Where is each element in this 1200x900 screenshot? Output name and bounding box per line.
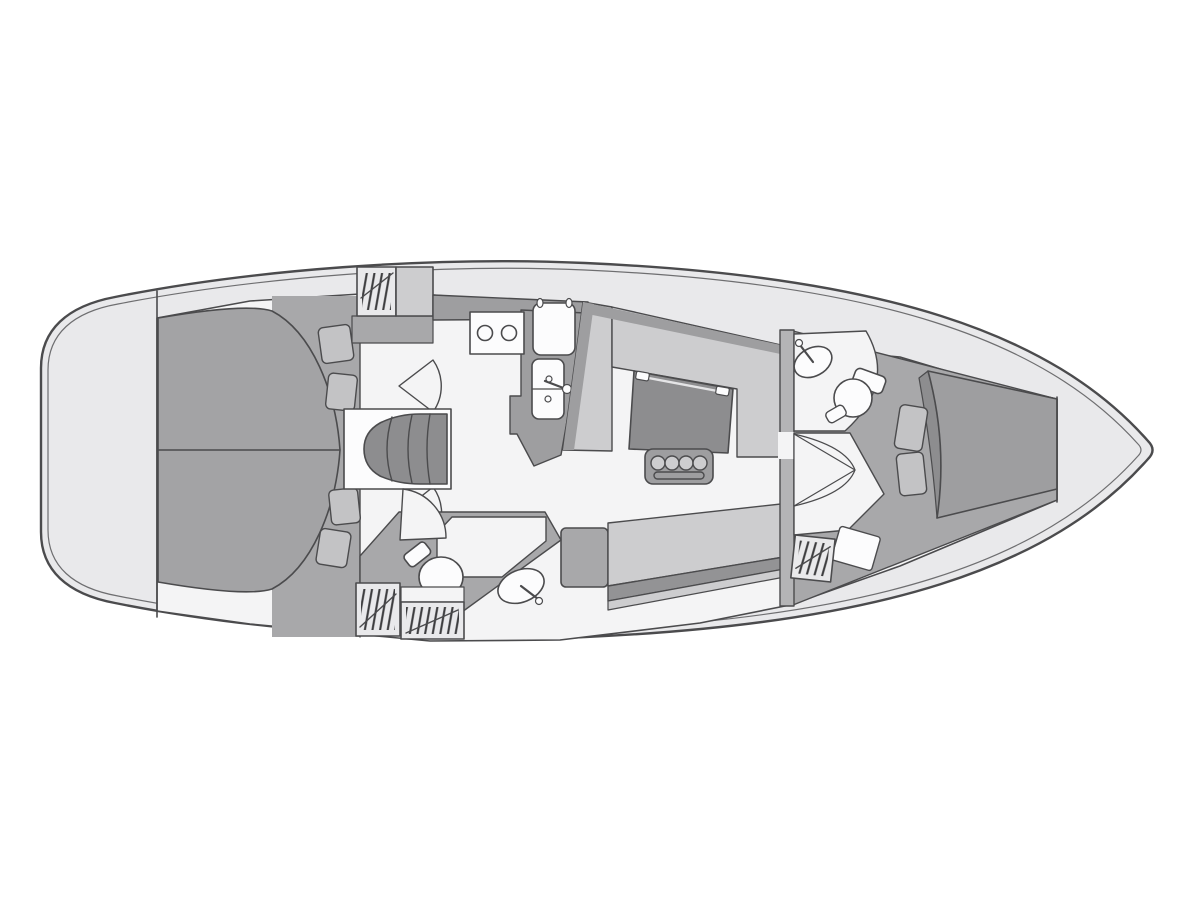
locker-shelf-band (352, 316, 433, 343)
lockers-bottom (356, 583, 464, 639)
pillow (325, 373, 358, 412)
bottle-slot (693, 456, 707, 470)
pillow (896, 452, 927, 497)
storage-locker (396, 267, 433, 316)
corner-seat (561, 528, 608, 587)
faucet-knob (546, 376, 552, 382)
bottle-slot (665, 456, 679, 470)
burner (478, 326, 493, 341)
pillow (315, 528, 351, 568)
table-corner-clip (635, 371, 649, 381)
companionway (344, 409, 451, 489)
fridge-hinge (566, 299, 572, 308)
faucet-knob (796, 340, 803, 347)
faucet-knob (545, 396, 551, 402)
bottle-slot (679, 456, 693, 470)
hanging-locker-hatch (796, 541, 829, 577)
boat-layout-plan (0, 0, 1200, 900)
pillow (318, 324, 355, 364)
boat-floorplan (0, 0, 1200, 900)
fridge-hinge (537, 299, 543, 308)
pillow (328, 488, 360, 526)
hanging-locker-hatch (361, 589, 395, 630)
table-corner-clip (715, 386, 729, 396)
burner (502, 326, 517, 341)
fridge-icebox (533, 303, 575, 355)
companionway-steps (364, 414, 447, 484)
bottle-slot (651, 456, 665, 470)
faucet-knob (536, 598, 543, 605)
locker-gap (401, 587, 464, 602)
lockers-top (352, 267, 433, 343)
pillow (894, 404, 929, 452)
